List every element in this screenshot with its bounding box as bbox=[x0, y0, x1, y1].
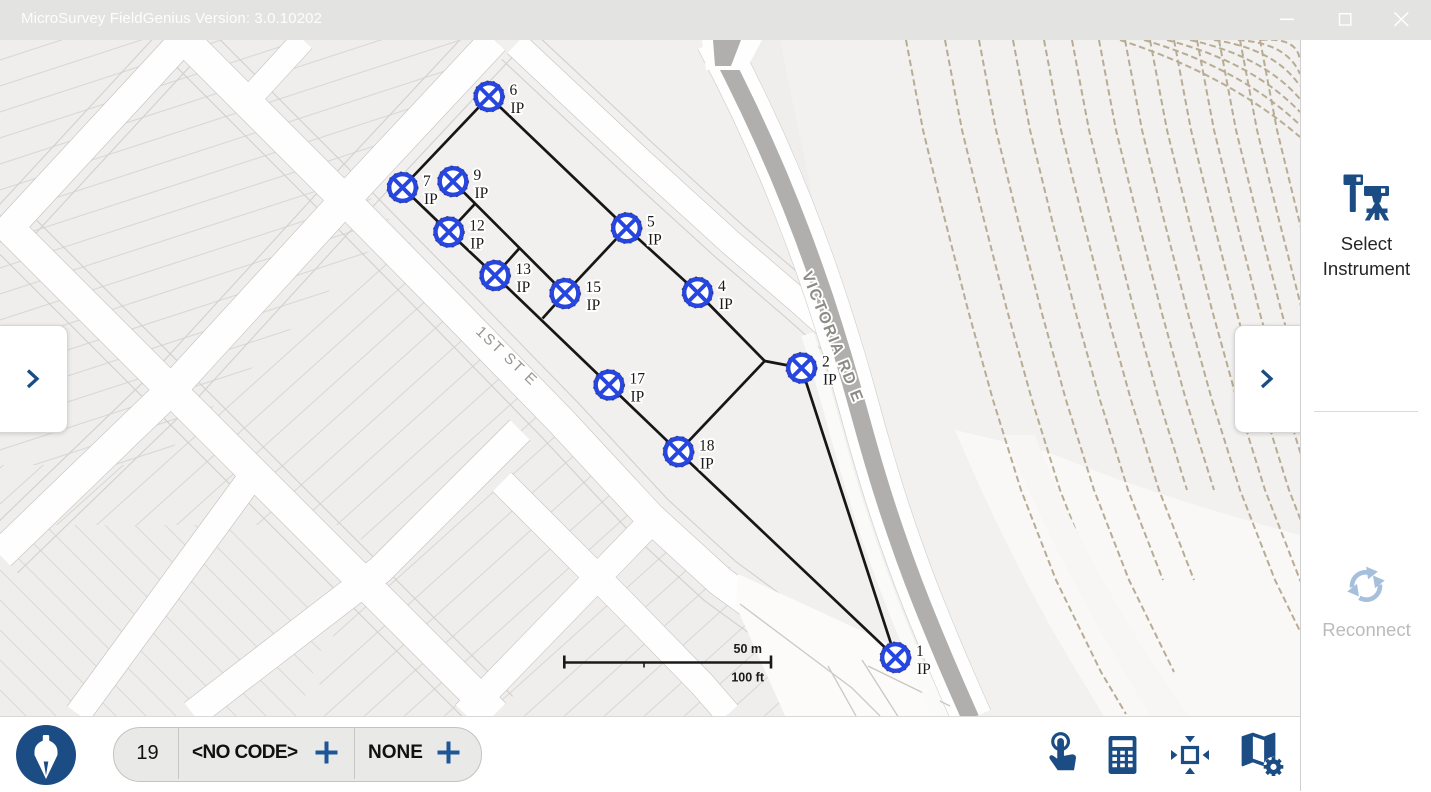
svg-text:17: 17 bbox=[630, 371, 646, 388]
svg-text:IP: IP bbox=[424, 191, 438, 208]
svg-text:2: 2 bbox=[822, 354, 830, 371]
svg-text:1: 1 bbox=[916, 643, 924, 660]
svg-text:7: 7 bbox=[423, 173, 431, 190]
svg-text:9: 9 bbox=[474, 167, 482, 184]
svg-text:IP: IP bbox=[917, 661, 931, 678]
svg-text:18: 18 bbox=[699, 437, 715, 454]
svg-text:5: 5 bbox=[647, 214, 655, 231]
svg-text:4: 4 bbox=[718, 278, 726, 295]
svg-text:13: 13 bbox=[516, 261, 532, 278]
svg-text:IP: IP bbox=[587, 297, 601, 314]
svg-text:12: 12 bbox=[469, 218, 485, 235]
svg-text:6: 6 bbox=[510, 82, 518, 99]
svg-text:IP: IP bbox=[719, 296, 733, 313]
svg-text:IP: IP bbox=[475, 185, 489, 202]
svg-text:15: 15 bbox=[586, 279, 602, 296]
svg-text:IP: IP bbox=[511, 100, 525, 117]
svg-text:IP: IP bbox=[517, 279, 531, 296]
svg-text:100 ft: 100 ft bbox=[731, 671, 764, 685]
svg-text:IP: IP bbox=[700, 455, 714, 472]
svg-text:IP: IP bbox=[631, 389, 645, 406]
svg-text:IP: IP bbox=[823, 372, 837, 389]
svg-text:IP: IP bbox=[470, 236, 484, 253]
svg-text:IP: IP bbox=[648, 232, 662, 249]
svg-text:50 m: 50 m bbox=[734, 642, 763, 656]
